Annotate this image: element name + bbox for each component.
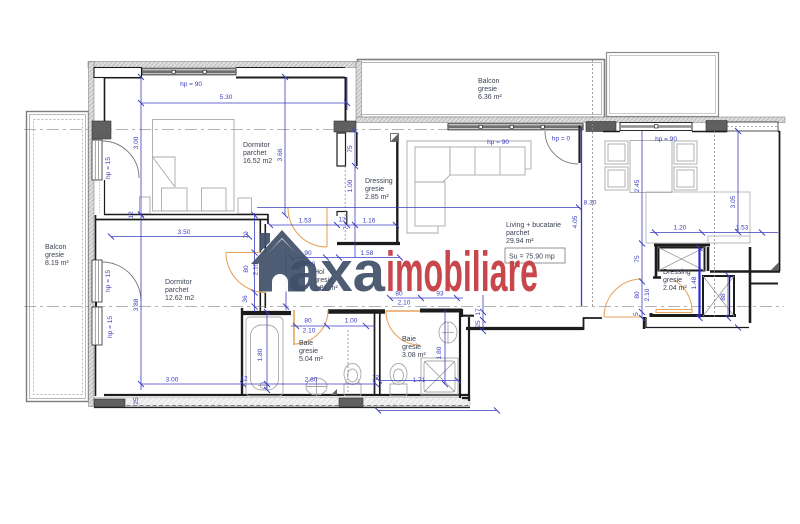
svg-text:gresie: gresie [478, 86, 497, 93]
svg-text:4.05: 4.05 [572, 215, 579, 228]
svg-text:5: 5 [633, 312, 640, 316]
svg-text:80: 80 [304, 318, 312, 325]
svg-text:80: 80 [634, 291, 641, 299]
svg-text:1.80: 1.80 [257, 348, 264, 361]
svg-text:2.10: 2.10 [644, 288, 651, 301]
svg-text:1.80: 1.80 [436, 346, 443, 359]
svg-text:hp = 15: hp = 15 [105, 157, 112, 179]
svg-text:3.66: 3.66 [277, 148, 284, 161]
svg-text:imobiliare: imobiliare [386, 240, 538, 304]
svg-text:12: 12 [240, 376, 248, 383]
svg-text:5.30: 5.30 [220, 94, 233, 101]
svg-text:36: 36 [242, 295, 249, 303]
svg-text:3.08 m²: 3.08 m² [402, 352, 426, 359]
svg-text:12: 12 [338, 217, 346, 224]
svg-text:parchet: parchet [165, 287, 188, 294]
svg-text:6.36 m²: 6.36 m² [478, 94, 502, 101]
svg-text:hp = 0: hp = 0 [552, 136, 571, 143]
svg-text:25: 25 [475, 320, 482, 328]
svg-text:2.85 m²: 2.85 m² [365, 194, 389, 201]
svg-text:2.80: 2.80 [305, 377, 318, 384]
svg-text:7: 7 [343, 226, 350, 230]
svg-text:gresie: gresie [365, 186, 384, 193]
svg-text:1.53: 1.53 [736, 225, 749, 232]
svg-text:axa: axa [288, 240, 386, 304]
svg-text:hp = 90: hp = 90 [487, 139, 509, 146]
svg-text:25: 25 [133, 397, 140, 405]
svg-text:2.04 m²: 2.04 m² [663, 285, 687, 292]
svg-text:12: 12 [128, 211, 135, 219]
svg-text:Dressing: Dressing [365, 178, 393, 185]
svg-text:1.16: 1.16 [363, 218, 376, 225]
svg-text:Balcon: Balcon [45, 244, 67, 251]
svg-text:hp = 90: hp = 90 [655, 136, 677, 143]
svg-text:8.19 m²: 8.19 m² [45, 260, 69, 267]
svg-text:16.52 m2: 16.52 m2 [243, 158, 272, 165]
svg-text:3.00: 3.00 [133, 136, 140, 149]
svg-text:Dormitor: Dormitor [165, 279, 193, 286]
svg-text:Baie: Baie [402, 336, 416, 343]
svg-text:3.50: 3.50 [178, 229, 191, 236]
svg-text:1.20: 1.20 [674, 225, 687, 232]
svg-text:2.10: 2.10 [303, 328, 316, 335]
svg-text:80: 80 [243, 265, 250, 273]
svg-text:1.48: 1.48 [691, 276, 698, 289]
svg-text:3.05: 3.05 [730, 195, 737, 208]
svg-text:75: 75 [347, 145, 354, 153]
svg-text:12: 12 [372, 375, 380, 382]
svg-text:1.00: 1.00 [345, 318, 358, 325]
svg-text:gresie: gresie [299, 348, 318, 355]
svg-text:gresie: gresie [402, 344, 421, 351]
svg-text:3.88: 3.88 [133, 298, 140, 311]
svg-text:88: 88 [720, 293, 727, 301]
svg-text:Living + bucatarie: Living + bucatarie [506, 222, 561, 229]
svg-text:1.00: 1.00 [347, 179, 354, 192]
svg-text:75: 75 [634, 255, 641, 263]
svg-text:5.04 m²: 5.04 m² [299, 356, 323, 363]
svg-text:gresie: gresie [663, 277, 682, 284]
svg-text:8.30: 8.30 [584, 200, 597, 207]
svg-text:1.53: 1.53 [299, 218, 312, 225]
svg-text:parchet: parchet [243, 150, 266, 157]
svg-text:parchet: parchet [506, 230, 529, 237]
svg-text:17: 17 [475, 308, 482, 316]
svg-text:hp = 90: hp = 90 [180, 81, 202, 88]
svg-text:hp = 15: hp = 15 [107, 316, 114, 338]
svg-text:hp = 15: hp = 15 [105, 270, 112, 292]
svg-text:1.71: 1.71 [413, 377, 426, 384]
svg-text:70: 70 [243, 231, 250, 239]
svg-text:Dressing: Dressing [663, 269, 691, 276]
svg-text:12.62 m2: 12.62 m2 [165, 295, 194, 302]
svg-text:Baie: Baie [299, 340, 313, 347]
svg-text:2.10: 2.10 [253, 262, 260, 275]
svg-text:3.00: 3.00 [166, 377, 179, 384]
svg-text:gresie: gresie [45, 252, 64, 259]
svg-text:Balcon: Balcon [478, 78, 500, 85]
svg-text:2.45: 2.45 [634, 179, 641, 192]
svg-text:Dormitor: Dormitor [243, 142, 271, 149]
